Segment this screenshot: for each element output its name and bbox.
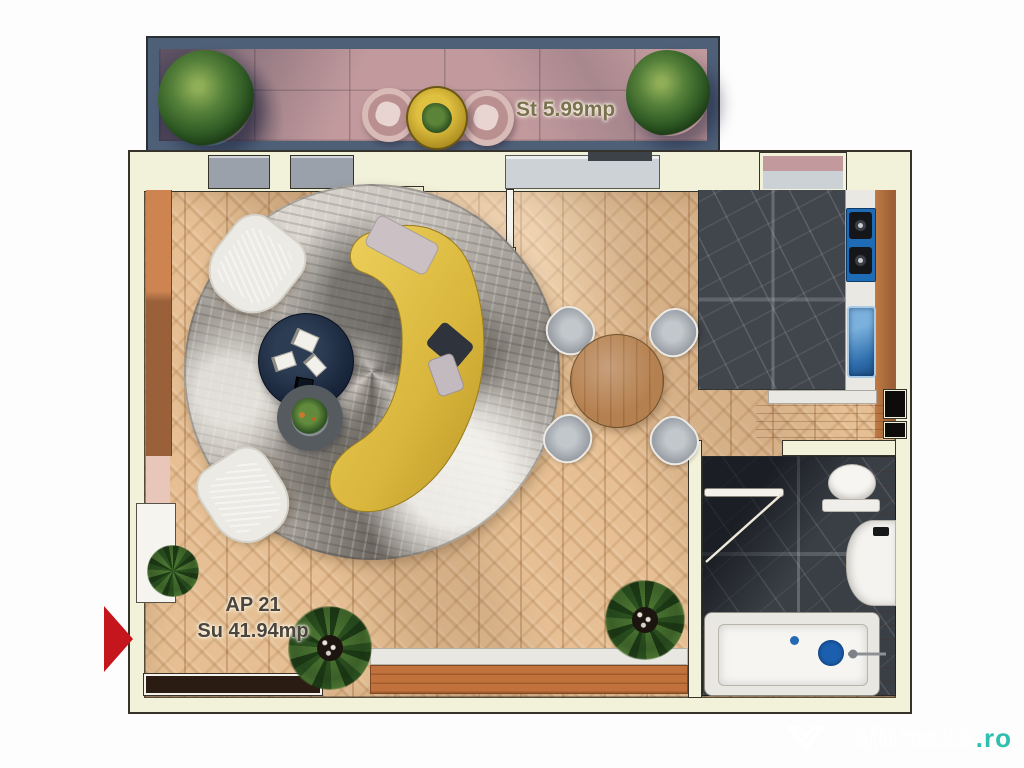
entry-console [144, 674, 322, 695]
watermark-brand: lajumate [842, 721, 972, 755]
floor-plant-right [605, 580, 685, 660]
terrace-area-label: St 5.99mp [516, 98, 615, 122]
bathroom-wall-vertical [688, 440, 702, 698]
kitchen-bench-top [768, 390, 877, 404]
watermark-tld: .ro [976, 723, 1012, 754]
outdoor-table [406, 86, 468, 150]
stove-hob [846, 208, 876, 282]
side-table-plant [292, 398, 328, 434]
bathroom-wall-horizontal [782, 440, 896, 456]
bathtub-overflow [790, 636, 799, 645]
apartment-number: AP 21 [178, 592, 328, 618]
entrance-arrow [104, 606, 133, 672]
kitchen-floor [698, 190, 847, 390]
floor-plan: St 5.99mp [0, 0, 1024, 768]
bathtub-basin [718, 624, 868, 686]
plant-pot [632, 607, 658, 633]
window-right [290, 155, 354, 189]
armchair-cushion [204, 455, 286, 538]
outdoor-chair-seat [470, 102, 501, 133]
kitchen-sink [847, 306, 876, 378]
book [303, 353, 327, 377]
terrace-bush-right [626, 50, 710, 136]
bathroom-sink [846, 520, 896, 606]
outdoor-chair-seat [373, 99, 403, 129]
kitchen-bench-wood [756, 404, 896, 438]
dining-table [570, 334, 664, 428]
burner [849, 212, 872, 239]
toilet-tank [822, 499, 880, 512]
corner-plant [147, 545, 199, 597]
utility-shaft [884, 422, 906, 438]
outdoor-chair-right [460, 90, 514, 146]
window-left [208, 155, 270, 189]
utility-shaft [884, 390, 906, 418]
apartment-area: Su 41.94mp [178, 618, 328, 644]
wall-wood-ledge [146, 190, 172, 456]
burner [849, 247, 872, 274]
bathtub [704, 612, 880, 696]
bench-front [370, 665, 688, 694]
apartment-label: AP 21 Su 41.94mp [178, 592, 328, 644]
book [271, 351, 297, 372]
sink-tap [873, 527, 889, 536]
toilet [828, 464, 876, 502]
watermark-logo [782, 716, 838, 760]
bathroom-door-leaf [704, 488, 784, 497]
watermark: lajumate .ro [782, 716, 1012, 760]
bathtub-drain [818, 640, 844, 666]
book [291, 328, 320, 353]
outdoor-table-plant [422, 103, 452, 133]
terrace-bush-left [158, 50, 254, 146]
kitchen-window-bay [760, 153, 846, 192]
glass-door-frame [588, 152, 652, 161]
